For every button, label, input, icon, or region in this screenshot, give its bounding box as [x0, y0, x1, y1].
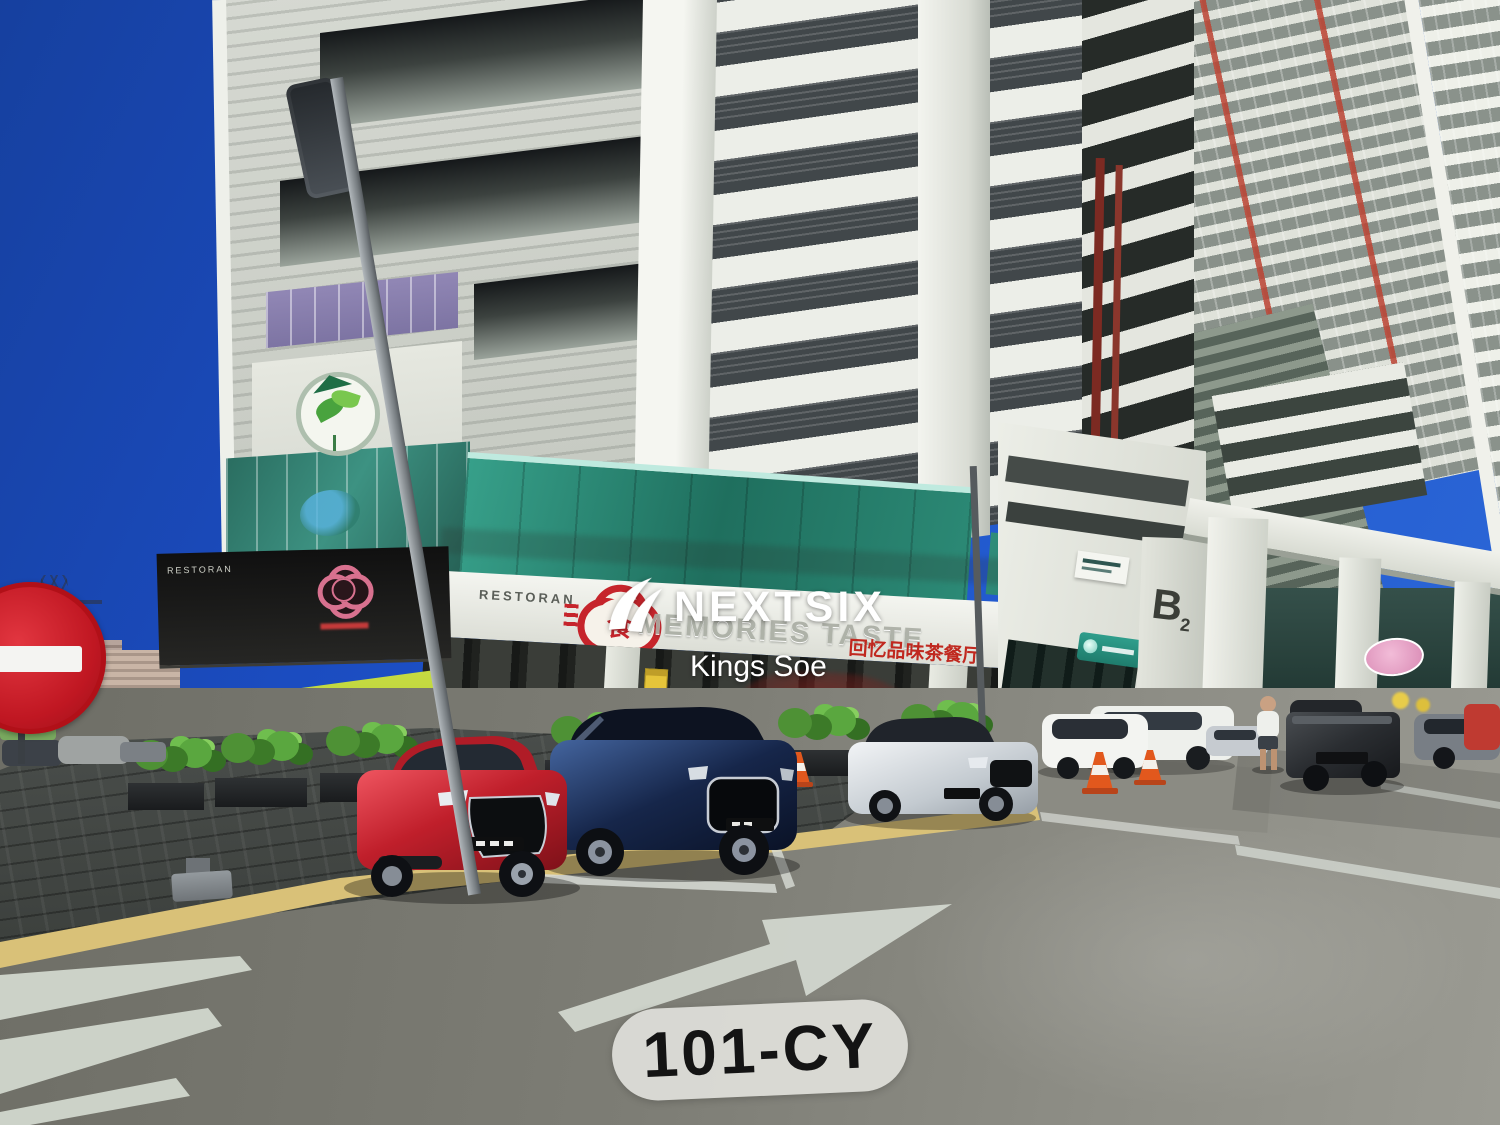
navy-suv — [544, 707, 800, 882]
watermark-brand: NEXTSIX — [674, 583, 886, 632]
no-entry-bar — [0, 646, 82, 672]
sign-pole — [18, 730, 25, 764]
red-car-edge — [1464, 704, 1500, 750]
distant-car — [58, 736, 130, 764]
distant-car — [120, 742, 166, 762]
nextsix-swoosh-icon — [596, 570, 671, 645]
watermark: NEXTSIX Kings Soe — [598, 572, 958, 684]
photo-label-text: 101-CY — [641, 1008, 879, 1092]
dark-pickup-truck — [1280, 700, 1404, 795]
street-photo-scene: RESTORAN 食 MEMORIES TASTE 回忆品味茶餐厅 RESTOR… — [0, 0, 1500, 1125]
vehicles-layer — [0, 0, 1500, 1125]
watermark-agent-name: Kings Soe — [690, 650, 958, 684]
distant-car — [2, 740, 62, 766]
photo-label-tag: 101-CY — [610, 998, 910, 1103]
lamp-pole-base — [171, 870, 233, 902]
silver-far-sedan-glass — [1214, 730, 1256, 740]
silver-sedan — [844, 717, 1038, 830]
